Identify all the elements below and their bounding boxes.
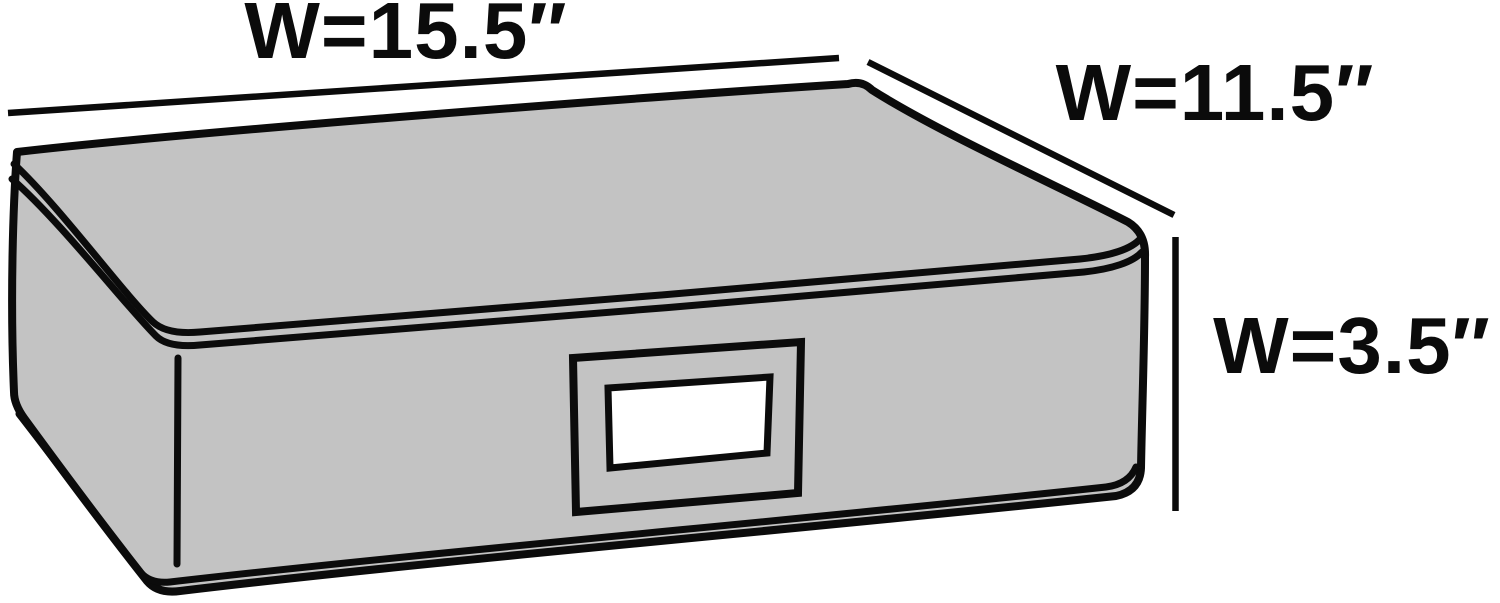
front-left-crease-line bbox=[177, 358, 178, 564]
dimension-label-width: W=15.5″ bbox=[244, 0, 567, 71]
diagram-canvas: W=15.5″ W=11.5″ W=3.5″ bbox=[0, 0, 1500, 603]
label-holder-window bbox=[608, 377, 770, 468]
dimension-label-height: W=3.5″ bbox=[1213, 306, 1491, 386]
dimension-label-depth: W=11.5″ bbox=[1056, 53, 1375, 133]
